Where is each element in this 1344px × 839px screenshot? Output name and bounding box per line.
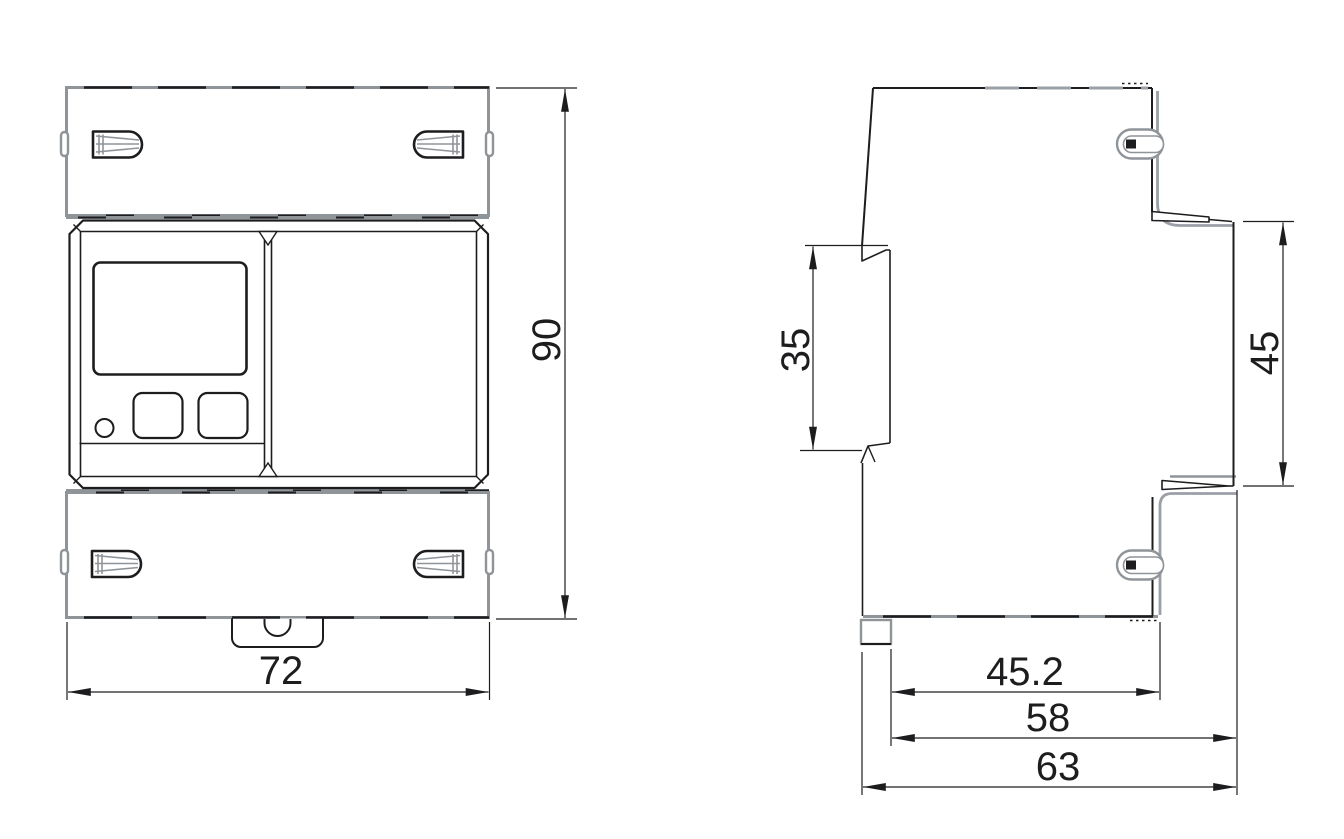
dimension-label: 63: [1036, 745, 1081, 789]
button-left: [134, 393, 183, 438]
dimension-label: 58: [1026, 696, 1071, 740]
bottom-terminal-cover: [61, 493, 493, 648]
led-indicator: [96, 419, 114, 437]
meter-body: [66, 218, 489, 491]
enclosure-profile: [861, 84, 1234, 645]
dim-height: 90: [496, 88, 577, 619]
dim-depth-body: 45.2: [892, 650, 1159, 694]
dimension-label: 90: [525, 318, 569, 363]
cover-hinge-pin: [61, 550, 68, 574]
front-panel-flange-bottom: [1160, 494, 1237, 616]
front-panel-flange-top: [1158, 91, 1234, 226]
dim-rail-slot: 35: [774, 246, 888, 451]
front-view: 90 72: [61, 88, 577, 701]
sealing-screw-top: [1117, 130, 1164, 159]
side-view: 35 45 45.2 58 63: [774, 84, 1294, 796]
cover-hinge-pin: [486, 132, 493, 156]
dim-panel-height: 45: [1243, 222, 1294, 487]
flange-wedge-top: [1152, 212, 1209, 223]
top-terminal-cover: [61, 88, 493, 216]
dimension-label: 72: [259, 649, 304, 693]
dimension-label: 45: [1243, 331, 1287, 376]
din-rail-clip: [232, 619, 323, 648]
button-right: [199, 393, 248, 438]
technical-drawing: 90 72: [0, 0, 1344, 839]
flange-wedge-bottom: [1162, 481, 1229, 490]
terminal-screw: [92, 551, 141, 577]
terminal-screw: [93, 132, 142, 158]
dimension-label: 45.2: [986, 650, 1064, 694]
dim-depth-panel: 58: [892, 696, 1236, 740]
din-rail-hook-top: [862, 246, 890, 261]
dim-depth-overall: 63: [863, 745, 1236, 789]
dimension-label: 35: [774, 328, 818, 373]
terminal-screw: [414, 132, 463, 158]
cover-hinge-pin: [486, 550, 493, 574]
cover-hinge-pin: [61, 132, 68, 156]
din-clip-foot: [861, 620, 891, 644]
din-rail-hook-bottom: [861, 443, 890, 463]
sealing-screw-bottom: [1117, 551, 1164, 580]
lcd-display: [94, 263, 247, 375]
terminal-screw: [414, 551, 463, 577]
